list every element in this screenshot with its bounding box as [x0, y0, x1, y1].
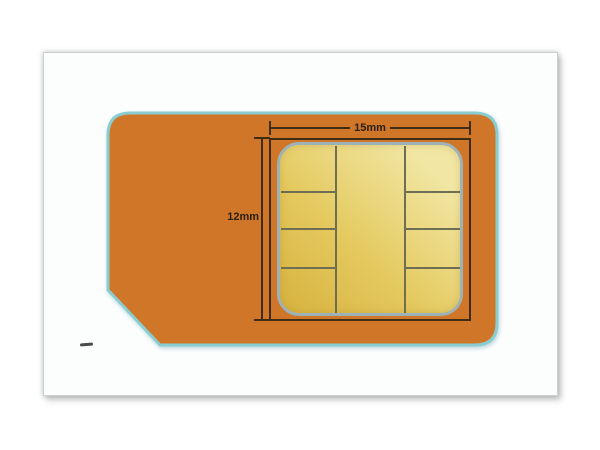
height-dimension-label: 12mm [221, 210, 259, 224]
dimension-tick-top [254, 137, 270, 139]
dimension-line-segment [390, 127, 469, 129]
dimension-tick-right [469, 121, 471, 135]
chip-bounding-box [269, 138, 471, 321]
sim-card-diagram: 15mm 12mm [0, 0, 600, 450]
width-dimension-label: 15mm [350, 121, 390, 135]
dimension-line-segment [271, 127, 350, 129]
dimension-tick-bottom [254, 319, 270, 321]
width-dimension: 15mm [269, 121, 471, 135]
height-dimension-line [261, 138, 263, 321]
